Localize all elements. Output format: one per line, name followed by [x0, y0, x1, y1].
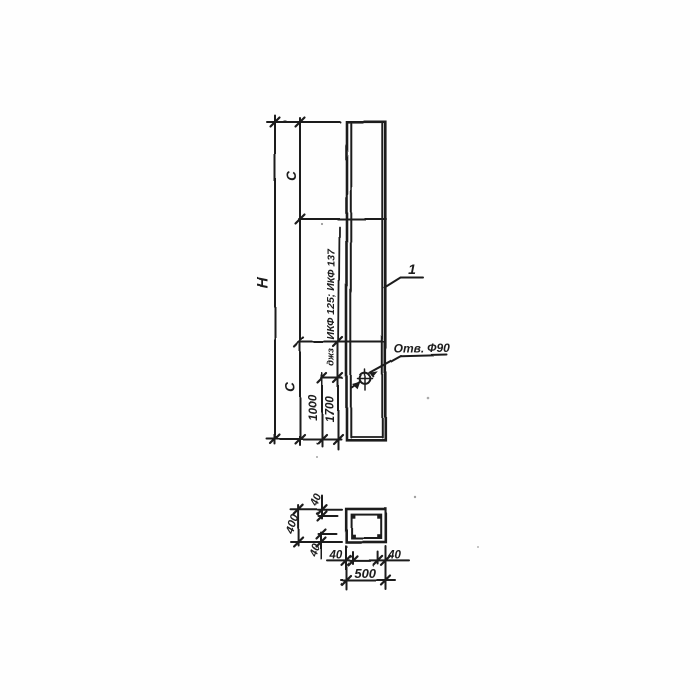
svg-text:C: C: [284, 171, 299, 181]
svg-text:1700: 1700: [325, 396, 337, 422]
svg-text:40: 40: [329, 550, 343, 562]
svg-text:1000: 1000: [308, 394, 320, 420]
svg-text:джз: джз: [326, 348, 337, 366]
svg-text:Отв. Ф90: Отв. Ф90: [394, 342, 451, 356]
svg-text:C: C: [283, 382, 298, 392]
svg-text:40: 40: [387, 550, 401, 562]
svg-text:500: 500: [354, 566, 376, 581]
svg-text:H: H: [254, 276, 271, 288]
svg-text:1: 1: [408, 261, 416, 277]
svg-text:ИКФ 125; ИКФ 137: ИКФ 125; ИКФ 137: [325, 248, 337, 340]
